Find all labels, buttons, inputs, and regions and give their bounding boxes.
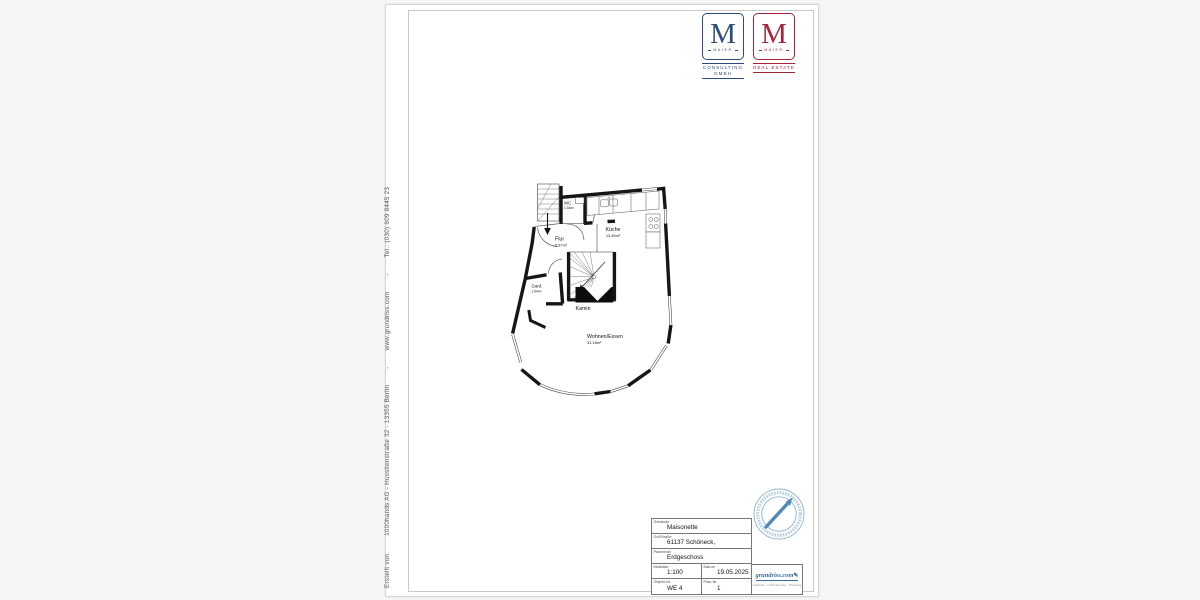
field-label-gebaeude: Gebäude [654, 520, 670, 524]
exterior-staircase [538, 184, 560, 221]
document-page: Erstellt von: 1000hands AG - Hussitenstr… [385, 4, 819, 597]
tagline-line1: REAL ESTATE [753, 65, 795, 71]
field-label-objekt: Objekt-Nr. [654, 580, 672, 584]
tagline-line2: GMBH [702, 71, 744, 77]
creator-credit-text: Erstellt von: 1000hands AG - Hussitenstr… [384, 187, 391, 588]
titleblock-row-objekt-plan: Objekt-Nr. WE 4 Plan-Nr. 1 [652, 579, 751, 594]
logo-tagline: CONSULTING GMBH [702, 63, 744, 79]
field-label-planinhalt: Planinhalt [654, 550, 671, 554]
entry-arrow-icon [544, 213, 551, 235]
logo-name-text: MAIER [713, 48, 732, 52]
grundriss-tagline: Aufmaß - CAD-Service - Planung [753, 583, 802, 587]
room-area-wohnen: 31.18m² [587, 340, 602, 345]
maier-consulting-logo: M MAIER CONSULTING GMBH [702, 13, 744, 79]
logo-name: MAIER [757, 48, 791, 52]
field-label-plan: Plan-Nr. [704, 580, 718, 584]
titleblock-row-gebaeude: Gebäude Maisonette [652, 519, 751, 534]
field-label-ort: Ort/Straße [654, 535, 672, 539]
room-label-gard: Gard. [532, 284, 543, 289]
room-label-kamin: Kamin [576, 306, 591, 312]
field-label-datum: Datum [704, 565, 715, 569]
room-area-wc: 1.34m² [564, 206, 574, 210]
titleblock-row-ort: Ort/Straße 61137 Schöneck, [652, 534, 751, 549]
tagline-line1: CONSULTING [702, 65, 744, 71]
doors [534, 208, 607, 274]
room-area-gard: 1.94m² [532, 290, 542, 294]
monogram-box: M MAIER [753, 13, 795, 60]
kitchen-appliances [646, 214, 660, 248]
title-block: Gebäude Maisonette Ort/Straße 61137 Schö… [651, 518, 803, 595]
room-area-kueche: 13.49m² [606, 233, 621, 238]
maier-real-estate-logo: M MAIER REAL ESTATE [753, 13, 795, 79]
titleblock-row-planinhalt: Planinhalt Erdgeschoss [652, 549, 751, 564]
logo-name: MAIER [706, 48, 740, 52]
titleblock-row-massstab-datum: Maßstab 1:100 Datum 19.05.2025 [652, 564, 751, 579]
monogram-box: M MAIER [702, 13, 744, 60]
field-label-massstab: Maßstab [654, 565, 669, 569]
cell-datum: Datum 19.05.2025 [701, 564, 751, 578]
grundriss-logo: grundriss.com✎ [756, 572, 799, 581]
wc-fixture [576, 198, 585, 204]
floorplan-drawing: WC 1.34m² Küche 13.49m² Flur 5.87m² Gard… [506, 178, 691, 408]
cell-plan: Plan-Nr. 1 [701, 579, 751, 594]
title-block-table: Gebäude Maisonette Ort/Straße 61137 Schö… [651, 518, 752, 595]
logo-tagline: REAL ESTATE [753, 63, 795, 74]
fireplace-icon [576, 287, 614, 303]
company-logos: M MAIER CONSULTING GMBH M MAIER REAL EST… [702, 13, 795, 79]
monogram-letter: M [761, 21, 787, 47]
titleblock-brand-cell: grundriss.com✎ Aufmaß - CAD-Service - Pl… [751, 564, 803, 595]
monogram-letter: M [710, 21, 736, 47]
cell-objekt: Objekt-Nr. WE 4 [652, 579, 701, 594]
cell-massstab: Maßstab 1:100 [652, 564, 701, 578]
pen-glyph-icon: ✎ [793, 573, 798, 579]
room-area-flur: 5.87m² [555, 243, 568, 248]
grundriss-logo-text: grundriss.com [756, 572, 794, 579]
logo-name-text: MAIER [764, 48, 783, 52]
room-label-wc: WC [564, 201, 571, 206]
